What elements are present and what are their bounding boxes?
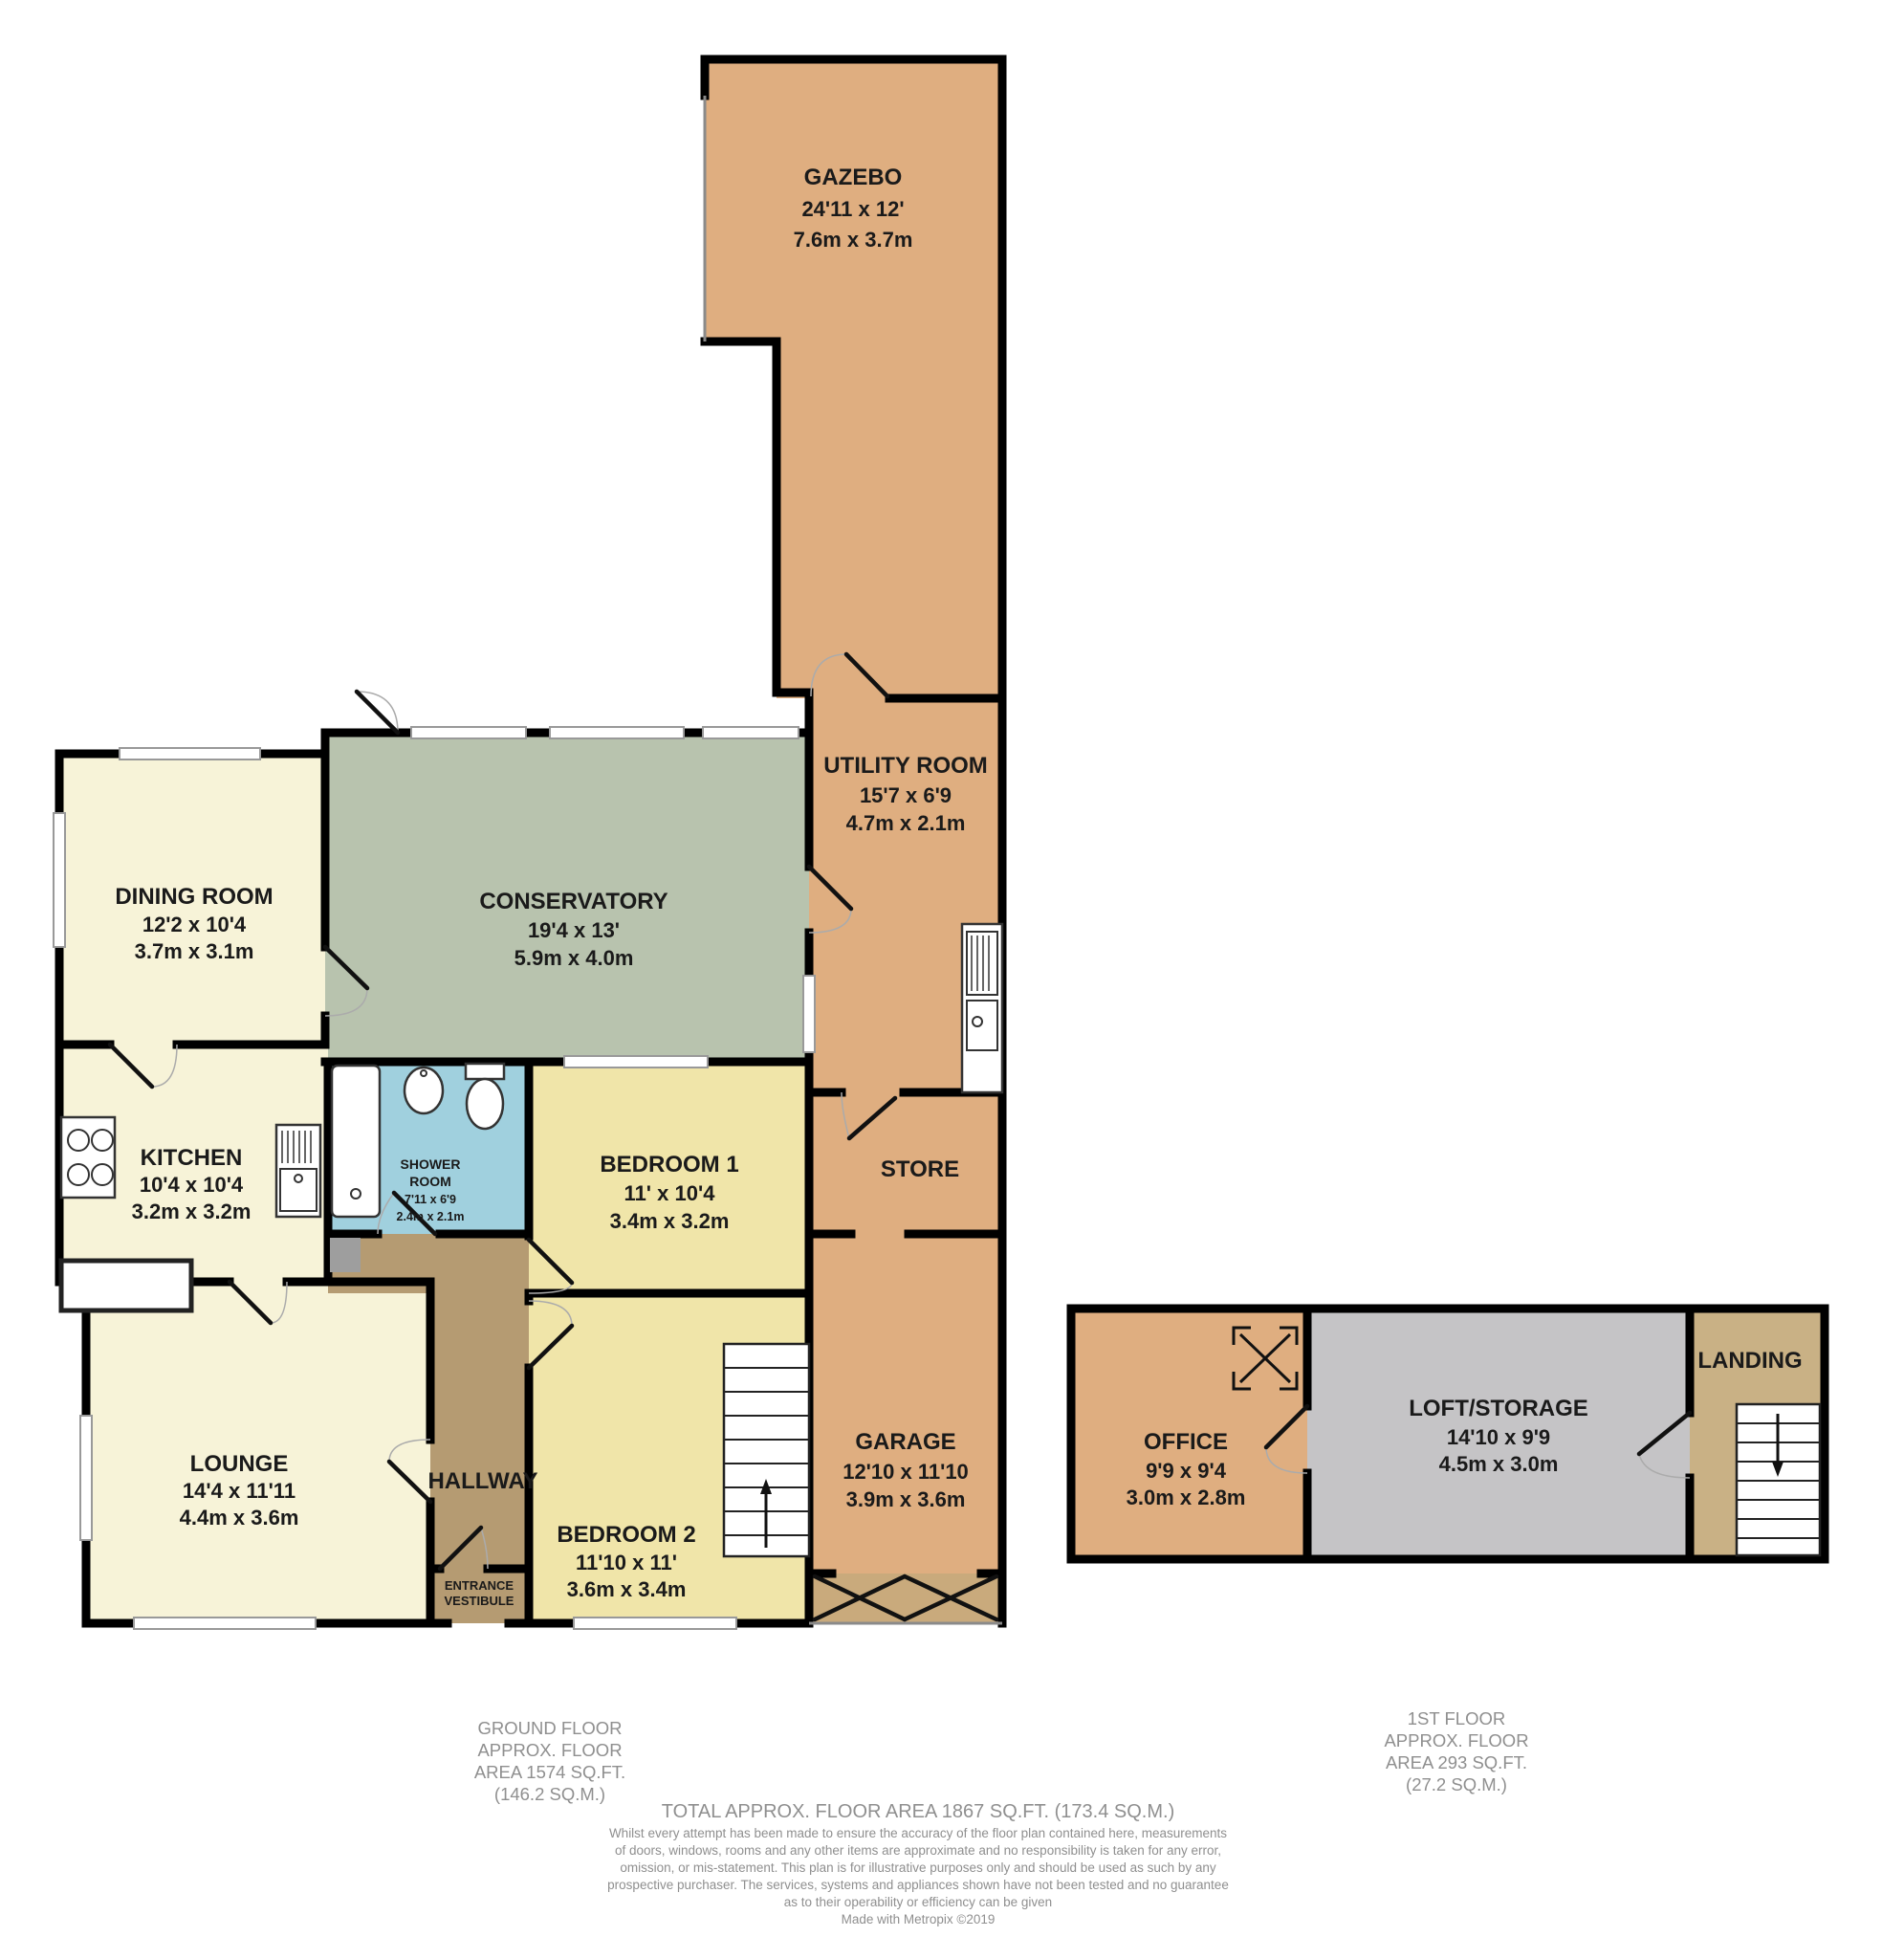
lounge-metric: 4.4m x 3.6m	[180, 1506, 299, 1530]
kitchen-imperial: 10'4 x 10'4	[140, 1173, 244, 1197]
office-label: OFFICE	[1144, 1429, 1228, 1455]
bedroom1-window	[564, 1056, 708, 1068]
hob-icon	[61, 1117, 115, 1198]
conservatory-right-window	[803, 976, 815, 1052]
garage-door-strip	[809, 1574, 1002, 1623]
office-metric: 3.0m x 2.8m	[1127, 1486, 1246, 1509]
toilet-icon	[466, 1064, 504, 1129]
first-floor-area-line: APPROX. FLOOR	[1384, 1730, 1528, 1750]
conservatory-window-1	[411, 727, 526, 738]
bedroom2-bottom-window	[574, 1618, 736, 1629]
dining-label: DINING ROOM	[115, 884, 273, 910]
hallway-label: HALLWAY	[427, 1468, 537, 1494]
bedroom2-label: BEDROOM 2	[557, 1522, 695, 1548]
bedroom2-metric: 3.6m x 3.4m	[567, 1577, 687, 1601]
stairs-up	[724, 1344, 809, 1556]
first-floor-area-line: (27.2 SQ.M.)	[1406, 1774, 1507, 1794]
shower-label-2: ROOM	[409, 1174, 451, 1189]
conservatory-window-2	[550, 727, 684, 738]
loft-label: LOFT/STORAGE	[1409, 1396, 1588, 1421]
shower-cubicle-icon	[332, 1066, 380, 1217]
utility-sink-icon	[962, 924, 1002, 1092]
corridor-floor	[777, 341, 1002, 698]
gazebo-metric: 7.6m x 3.7m	[794, 228, 913, 252]
conservatory-window-3	[703, 727, 799, 738]
shower-imperial: 7'11 x 6'9	[405, 1193, 456, 1206]
lounge-imperial: 14'4 x 11'11	[183, 1479, 295, 1503]
vestibule-label-1: ENTRANCE	[445, 1578, 514, 1593]
vestibule-label-2: VESTIBULE	[445, 1594, 514, 1608]
utility-imperial: 15'7 x 6'9	[860, 783, 952, 807]
ground-floor-area-line: GROUND FLOOR	[477, 1718, 622, 1738]
dining-imperial: 12'2 x 10'4	[142, 913, 247, 936]
rear-porch-nook	[61, 1261, 191, 1310]
airing-cupboard	[330, 1238, 361, 1272]
ground-floor-area-line: APPROX. FLOOR	[477, 1740, 622, 1760]
gazebo-label: GAZEBO	[804, 165, 903, 190]
kitchen-sink-icon	[276, 1125, 320, 1217]
disclaimer-line: omission, or mis-statement. This plan is…	[620, 1860, 1216, 1875]
lounge-left-window	[80, 1416, 92, 1540]
loft-metric: 4.5m x 3.0m	[1439, 1452, 1559, 1476]
disclaimer-line: prospective purchaser. The services, sys…	[607, 1878, 1229, 1892]
dining-left-window	[54, 813, 65, 947]
gazebo-imperial: 24'11 x 12'	[801, 197, 904, 221]
lounge-bottom-window	[134, 1618, 316, 1629]
store-label: STORE	[881, 1156, 959, 1182]
conservatory-metric: 5.9m x 4.0m	[514, 946, 634, 970]
bedroom1-metric: 3.4m x 3.2m	[610, 1209, 730, 1233]
ground-floor-area-line: (146.2 SQ.M.)	[494, 1784, 605, 1804]
stairs-down	[1737, 1404, 1820, 1555]
conservatory-imperial: 19'4 x 13'	[528, 918, 620, 942]
bedroom1-imperial: 11' x 10'4	[624, 1181, 716, 1205]
kitchen-label: KITCHEN	[141, 1145, 243, 1171]
garage-floor	[809, 1234, 1002, 1574]
first-floor-area-line: AREA 293 SQ.FT.	[1386, 1752, 1527, 1772]
bedroom1-floor	[529, 1062, 809, 1293]
loft-imperial: 14'10 x 9'9	[1447, 1425, 1550, 1449]
first-floor-area-line: 1ST FLOOR	[1408, 1708, 1505, 1728]
garage-imperial: 12'10 x 11'10	[843, 1460, 969, 1484]
garage-label: GARAGE	[855, 1429, 955, 1455]
total-area-line: TOTAL APPROX. FLOOR AREA 1867 SQ.FT. (17…	[662, 1801, 1174, 1822]
bedroom1-label: BEDROOM 1	[600, 1152, 738, 1178]
floor-plan: GAZEBO 24'11 x 12' 7.6m x 3.7m UTILITY R…	[0, 0, 1904, 1937]
shower-metric: 2.4m x 2.1m	[397, 1210, 465, 1223]
conservatory-label: CONSERVATORY	[479, 889, 667, 914]
metropix-credit: Made with Metropix ©2019	[842, 1912, 996, 1926]
disclaimer-line: Whilst every attempt has been made to en…	[609, 1826, 1227, 1840]
lounge-label: LOUNGE	[190, 1451, 289, 1477]
kitchen-metric: 3.2m x 3.2m	[132, 1200, 252, 1223]
shower-label-1: SHOWER	[401, 1156, 461, 1172]
disclaimer-line: as to their operability or efficiency ca…	[784, 1895, 1052, 1909]
ground-floor-area-line: AREA 1574 SQ.FT.	[474, 1762, 625, 1782]
garage-metric: 3.9m x 3.6m	[846, 1487, 966, 1511]
dining-metric: 3.7m x 3.1m	[135, 939, 254, 963]
landing-label: LANDING	[1697, 1348, 1802, 1374]
basin-icon	[405, 1068, 443, 1113]
disclaimer-line: of doors, windows, rooms and any other i…	[615, 1843, 1221, 1858]
conservatory-outside-door	[357, 692, 398, 733]
dining-top-window	[120, 748, 260, 759]
utility-metric: 4.7m x 2.1m	[846, 811, 966, 835]
hallway-floor-strip	[430, 1293, 529, 1623]
utility-label: UTILITY ROOM	[823, 753, 988, 779]
office-imperial: 9'9 x 9'4	[1146, 1459, 1227, 1483]
footer: GROUND FLOOR APPROX. FLOOR AREA 1574 SQ.…	[474, 1708, 1529, 1926]
bedroom2-imperial: 11'10 x 11'	[576, 1551, 677, 1574]
